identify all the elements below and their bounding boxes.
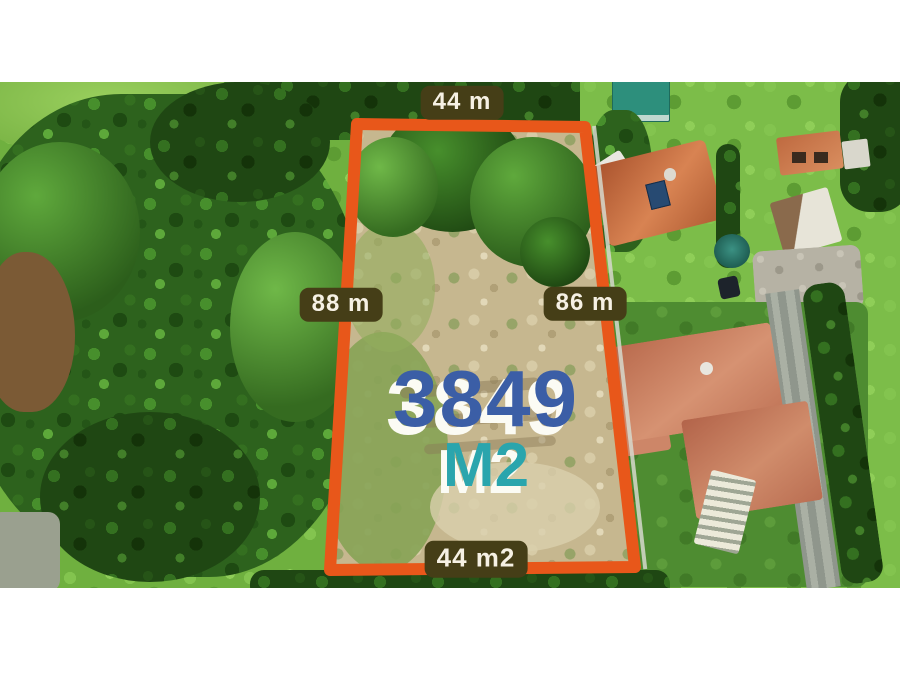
- real-estate-listing-image: 44 m 88 m 86 m 44 m2 3849 M2: [0, 0, 900, 675]
- tree-canopy: [150, 82, 330, 202]
- parked-car: [717, 275, 741, 300]
- aerial-photo: 44 m 88 m 86 m 44 m2 3849 M2: [0, 82, 900, 588]
- dimension-label-right: 86 m: [544, 287, 627, 321]
- lot-area-unit: M2: [443, 435, 529, 497]
- dimension-label-left: 88 m: [300, 288, 383, 322]
- lot-tree: [348, 137, 438, 237]
- lot-tree: [520, 217, 590, 287]
- big-house-roof-lower: [681, 401, 823, 520]
- cottage-roof: [776, 130, 844, 176]
- cottage-window: [814, 152, 828, 163]
- lot-area-value: 3849: [393, 359, 579, 439]
- roof-vent: [700, 362, 713, 375]
- dimension-label-top: 44 m: [421, 86, 504, 120]
- white-shed: [841, 139, 870, 170]
- dimension-label-bottom: 44 m2: [425, 541, 528, 578]
- gazebo-roof: [714, 234, 750, 268]
- tree-canopy: [230, 232, 360, 422]
- path-bottom-left: [0, 512, 60, 588]
- water-heater: [664, 168, 676, 181]
- cottage-window: [792, 152, 806, 163]
- tree-canopy: [40, 412, 260, 582]
